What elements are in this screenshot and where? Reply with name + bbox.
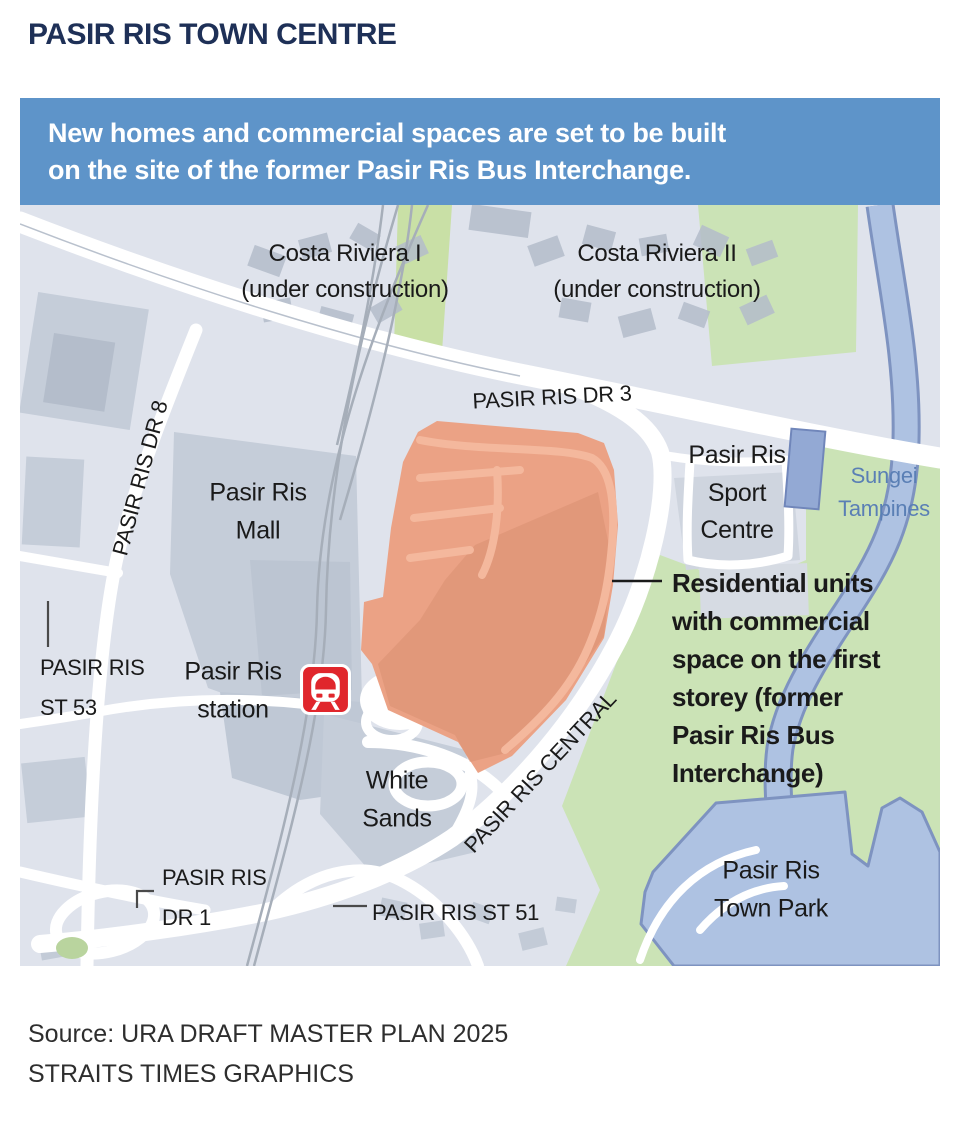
site-annotation: Residential units with commercial space … (672, 564, 932, 792)
map-label-pasir-ris-st-51: PASIR RIS ST 51 (372, 896, 539, 929)
map-label-pasir-ris-st-53: PASIR RIS ST 53 (40, 648, 144, 728)
roundabout-green-island (56, 937, 88, 959)
map-label-pasir-ris-dr-1: PASIR RIS DR 1 (162, 858, 266, 938)
map-label-costa-riviera-1: Costa Riviera I (under construction) (241, 236, 448, 308)
map-label-pasir-ris-sport-centre: Pasir Ris Sport Centre (688, 437, 785, 550)
hdb-block (43, 333, 115, 412)
intro-banner-text: New homes and commercial spaces are set … (20, 115, 726, 189)
map-label-sungei-tampines: Sungei Tampines (838, 459, 930, 525)
mrt-train-icon (300, 664, 351, 715)
hdb-block (21, 757, 91, 823)
map-label-pasir-ris-station: Pasir Ris station (184, 654, 281, 729)
hdb-block (22, 457, 85, 548)
map-label-pasir-ris-town-park: Pasir Ris Town Park (714, 853, 828, 928)
source-line: Source: URA DRAFT MASTER PLAN 2025 (28, 1014, 508, 1054)
map-label-pasir-ris-mall: Pasir Ris Mall (209, 475, 306, 550)
page-title: PASIR RIS TOWN CENTRE (28, 18, 396, 52)
map-label-costa-riviera-2: Costa Riviera II (under construction) (553, 236, 760, 308)
map-label-white-sands: White Sands (362, 763, 431, 838)
intro-banner: New homes and commercial spaces are set … (20, 98, 940, 205)
source-credit: Source: URA DRAFT MASTER PLAN 2025 STRAI… (28, 1014, 508, 1094)
swimming-pool-building (785, 429, 826, 510)
map: Costa Riviera I (under construction) Cos… (20, 205, 940, 966)
graphics-credit-line: STRAITS TIMES GRAPHICS (28, 1054, 508, 1094)
